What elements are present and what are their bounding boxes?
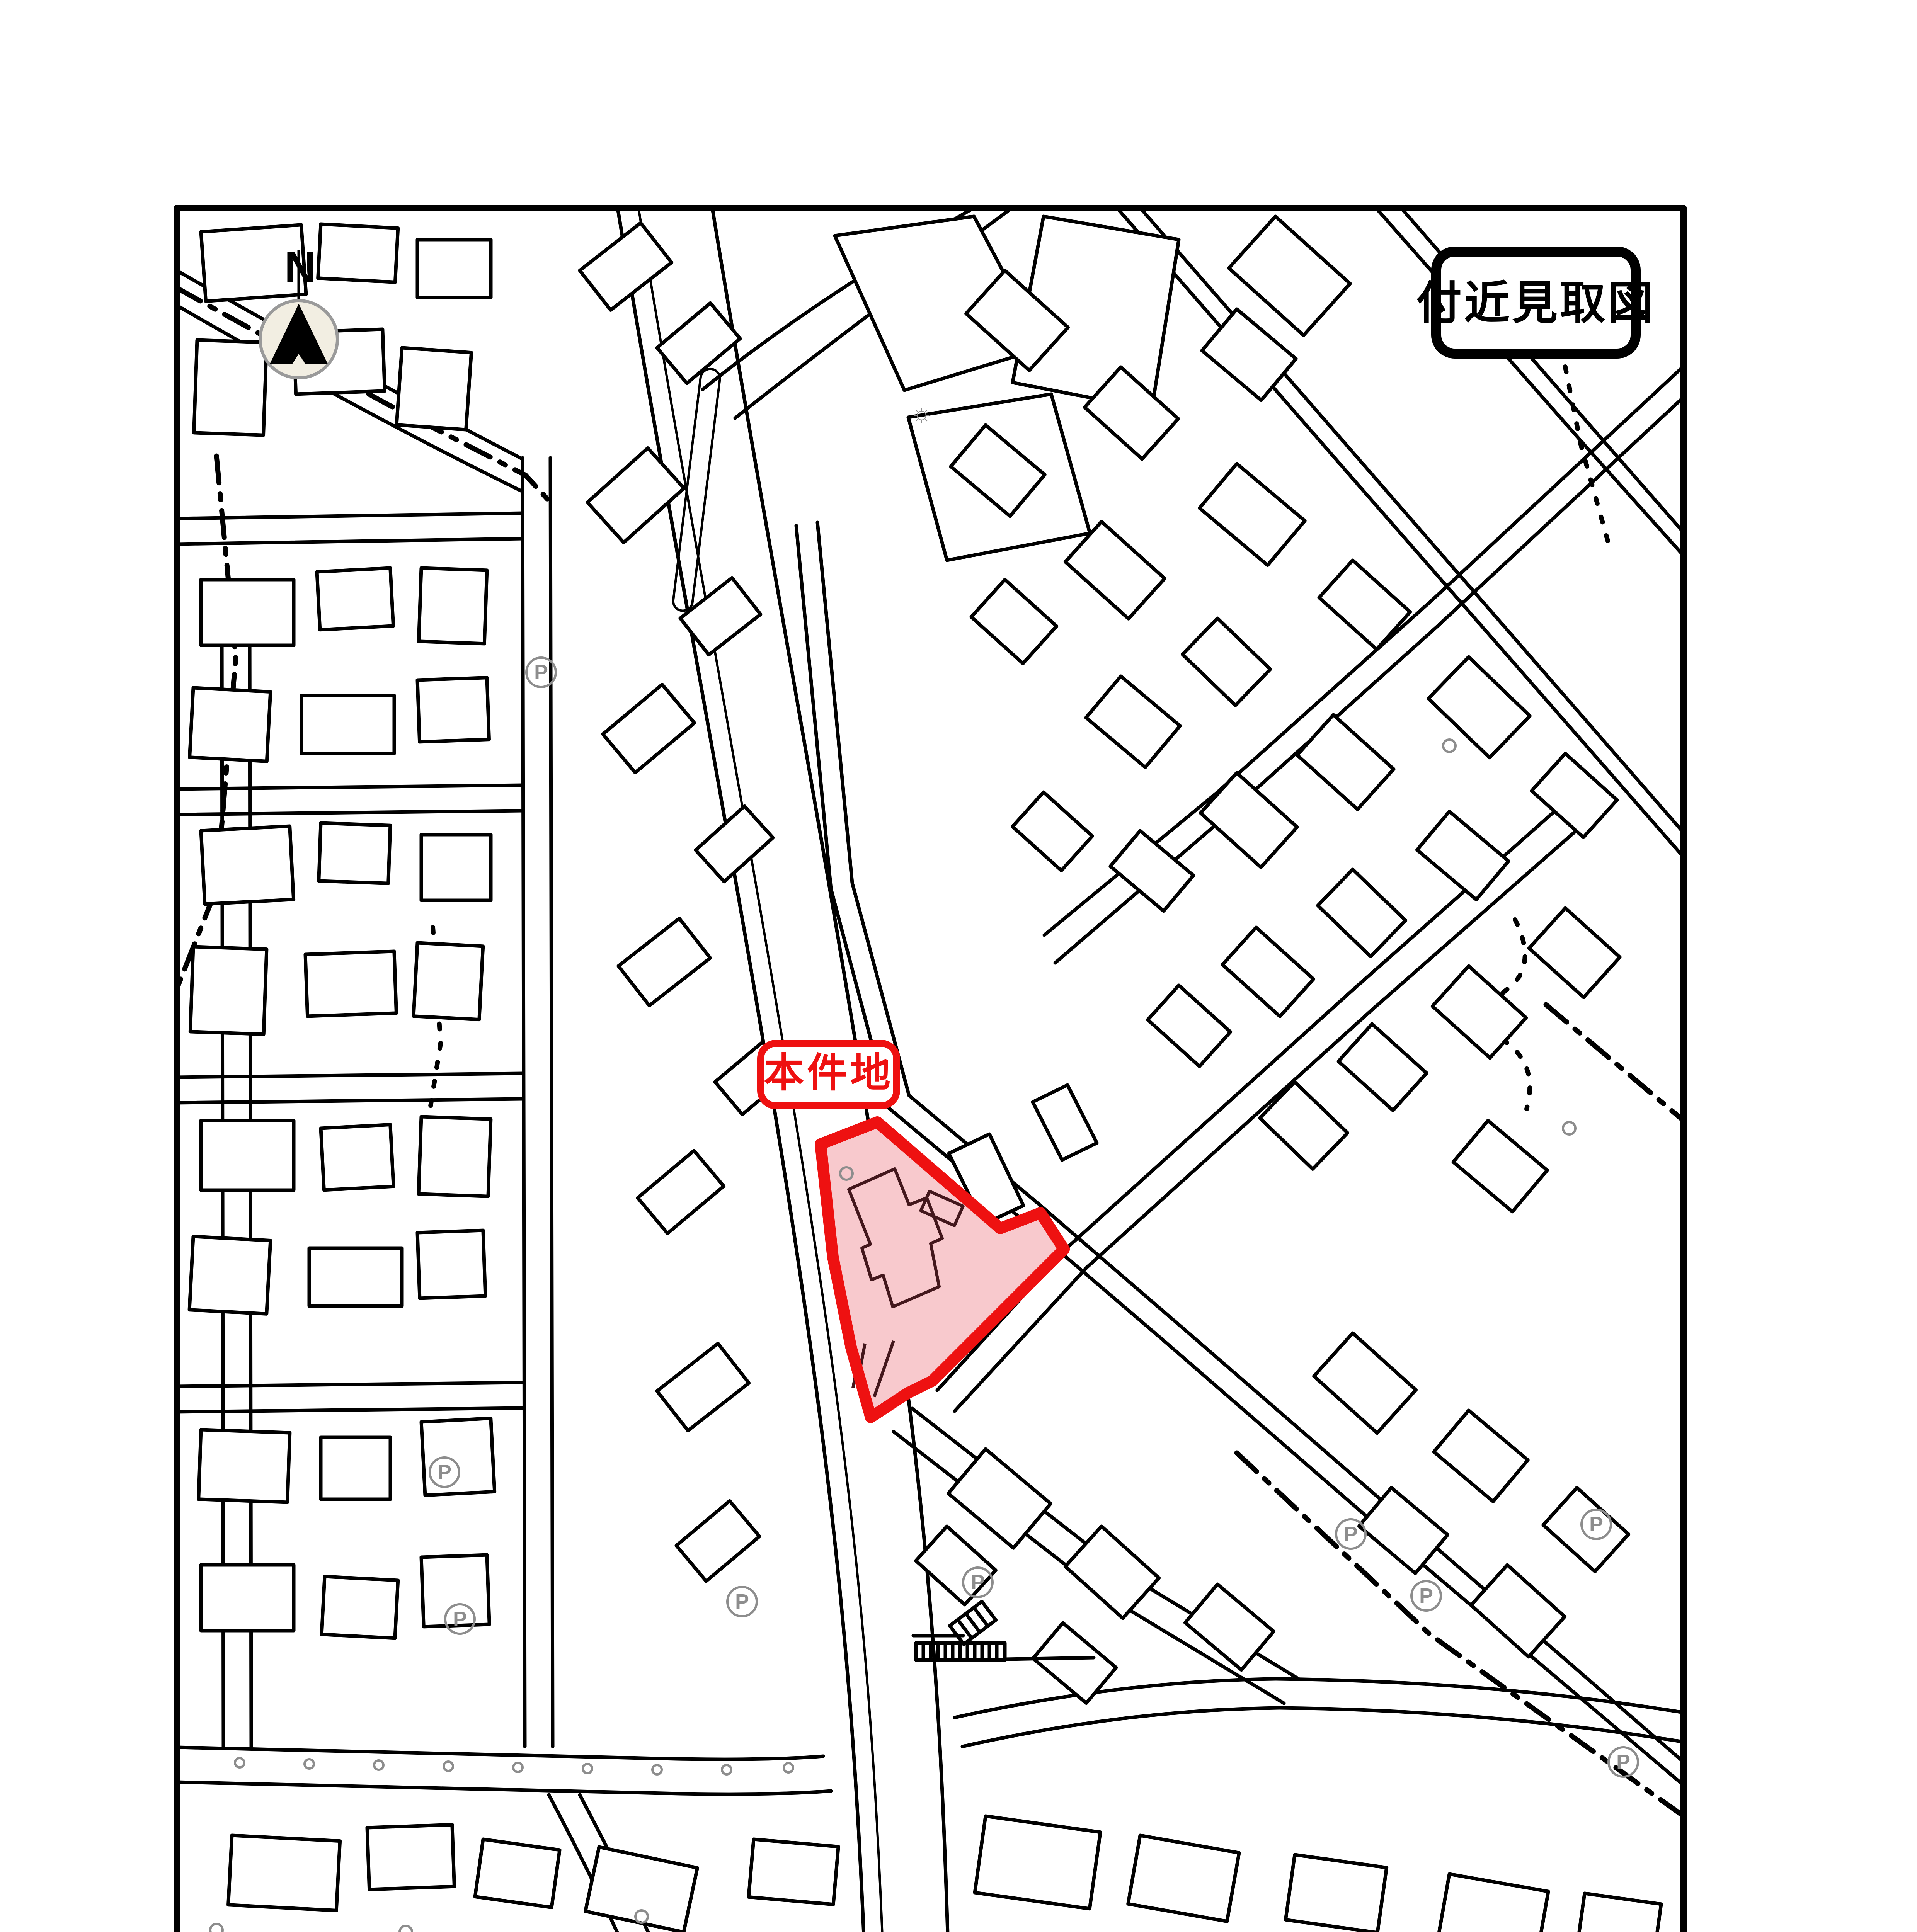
building	[201, 1121, 294, 1190]
map-content: P P P P P P P P P P P P ☼	[177, 208, 1684, 1932]
building	[301, 696, 394, 753]
building	[194, 340, 267, 435]
building	[1033, 1085, 1097, 1160]
steps-icon	[950, 1602, 996, 1645]
building	[475, 1839, 560, 1907]
parking-letter: P	[1344, 1522, 1358, 1546]
building	[417, 1230, 485, 1298]
utility-symbol	[400, 1926, 412, 1932]
sun-symbol: ☼	[910, 399, 933, 427]
building	[1260, 1082, 1348, 1169]
building	[586, 1847, 698, 1932]
building	[1200, 464, 1305, 565]
building	[948, 1449, 1051, 1548]
title-box: 付近見取図	[1416, 252, 1656, 354]
parking-letter: P	[453, 1607, 467, 1631]
building	[580, 223, 672, 310]
building	[1086, 676, 1180, 767]
building	[190, 688, 271, 761]
building	[1314, 1333, 1416, 1433]
building	[201, 826, 294, 904]
building	[618, 918, 710, 1006]
site-label-callout: 本件地	[761, 1043, 897, 1106]
building	[417, 240, 491, 298]
building	[975, 1816, 1100, 1909]
building	[638, 1151, 724, 1233]
building	[305, 951, 396, 1016]
building	[318, 224, 398, 282]
building	[421, 835, 491, 900]
building	[1013, 792, 1093, 871]
building	[1471, 1565, 1565, 1657]
parking-letter: P	[735, 1590, 749, 1613]
steps-icon	[916, 1643, 1005, 1660]
building	[228, 1835, 340, 1910]
building	[419, 568, 487, 644]
page-title: 付近見取図	[1416, 278, 1656, 329]
utility-symbol	[210, 1924, 223, 1932]
parking-letter: P	[971, 1571, 985, 1594]
building	[1183, 618, 1270, 705]
building	[199, 1430, 290, 1502]
north-label: N	[284, 243, 316, 291]
road	[177, 539, 523, 544]
road	[177, 1747, 823, 1759]
building	[1437, 1874, 1548, 1932]
building	[322, 1577, 398, 1638]
building	[367, 1825, 454, 1889]
parking-letter: P	[1419, 1584, 1433, 1607]
parking-letter: P	[1589, 1513, 1603, 1536]
road	[177, 1073, 523, 1077]
building	[189, 1236, 271, 1314]
subject-site-parcel	[821, 1122, 1064, 1417]
building	[1432, 966, 1526, 1058]
parking-letter: P	[534, 661, 548, 684]
building	[397, 348, 472, 430]
building	[1319, 560, 1410, 649]
building	[1318, 869, 1406, 956]
building	[603, 684, 695, 772]
building	[676, 1501, 759, 1581]
building	[1434, 1410, 1528, 1502]
road	[177, 1408, 523, 1412]
building	[1148, 985, 1231, 1066]
road	[177, 785, 523, 789]
road	[523, 458, 525, 1747]
road	[177, 513, 523, 519]
site-label: 本件地	[764, 1051, 894, 1095]
building	[417, 678, 489, 742]
parking-letter: P	[438, 1461, 451, 1484]
road	[550, 458, 553, 1747]
building	[421, 1418, 495, 1495]
building	[1453, 1121, 1547, 1212]
road	[177, 1099, 523, 1103]
building	[1529, 908, 1620, 997]
building	[1543, 1488, 1629, 1571]
building	[1110, 831, 1193, 911]
building	[657, 1344, 749, 1431]
building	[201, 580, 294, 645]
parking-symbol: P	[727, 1587, 757, 1616]
building	[309, 1248, 402, 1306]
building	[1222, 927, 1314, 1016]
boundary-dashdot	[1546, 1005, 1684, 1121]
building	[1285, 1855, 1386, 1932]
building	[1297, 715, 1394, 810]
building	[587, 448, 684, 543]
building	[696, 806, 773, 881]
building	[414, 943, 483, 1020]
road	[177, 1782, 831, 1794]
parking-symbol: P	[1411, 1581, 1441, 1611]
building	[1200, 773, 1297, 867]
building	[419, 1117, 491, 1196]
road	[177, 1383, 523, 1386]
building	[749, 1839, 838, 1905]
building	[1128, 1835, 1239, 1921]
building	[319, 823, 390, 883]
building	[1338, 1024, 1427, 1111]
utility-symbol	[1563, 1122, 1575, 1134]
building	[317, 568, 393, 630]
utility-symbol	[1443, 740, 1456, 752]
building	[971, 580, 1057, 663]
building	[321, 1125, 393, 1190]
building	[1359, 1488, 1447, 1573]
building	[321, 1437, 390, 1499]
building	[190, 947, 267, 1034]
parking-symbol: P	[1336, 1519, 1365, 1549]
building	[1577, 1893, 1661, 1932]
road	[177, 811, 523, 815]
building	[201, 1565, 294, 1631]
parking-letter: P	[1616, 1750, 1630, 1774]
vicinity-map: P P P P P P P P P P P P ☼	[0, 0, 1917, 1932]
parking-symbol: P	[1609, 1747, 1638, 1777]
building	[1417, 811, 1508, 900]
